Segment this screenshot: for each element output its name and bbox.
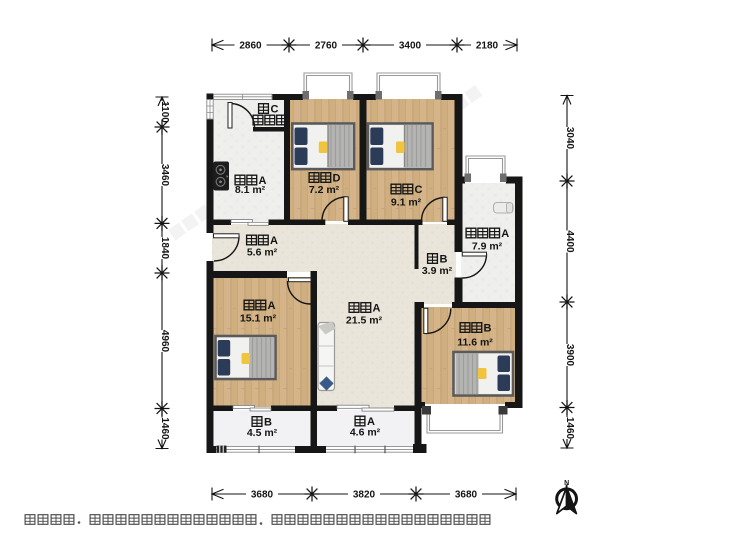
svg-text:5.6 m²: 5.6 m² [247, 247, 278, 259]
svg-text:7.9 m²: 7.9 m² [472, 241, 503, 253]
svg-text:3680: 3680 [455, 490, 478, 501]
svg-text:1460: 1460 [564, 417, 575, 440]
svg-text:2180: 2180 [476, 41, 499, 52]
svg-text:8.1 m²: 8.1 m² [235, 184, 266, 196]
svg-text:1460: 1460 [159, 417, 170, 440]
svg-text:3900: 3900 [564, 344, 575, 367]
svg-text:4960: 4960 [159, 330, 170, 353]
svg-text:9.1 m²: 9.1 m² [391, 197, 422, 209]
svg-text:1100: 1100 [159, 101, 170, 123]
svg-text:A: A [373, 303, 381, 315]
svg-text:21.5 m²: 21.5 m² [346, 315, 383, 327]
svg-text:11.6 m²: 11.6 m² [457, 337, 493, 349]
svg-text:3040: 3040 [564, 127, 575, 150]
svg-text:1840: 1840 [159, 237, 170, 260]
svg-text:A: A [501, 228, 509, 240]
svg-text:2760: 2760 [315, 41, 338, 52]
svg-text:4.6 m²: 4.6 m² [350, 427, 381, 439]
svg-text:B: B [484, 323, 492, 335]
svg-text:3820: 3820 [353, 490, 376, 501]
svg-text:3460: 3460 [159, 164, 170, 187]
svg-text:A: A [270, 235, 278, 247]
svg-text:3400: 3400 [399, 41, 422, 52]
svg-text:3.9 m²: 3.9 m² [422, 265, 453, 277]
svg-text:7.2 m²: 7.2 m² [309, 184, 340, 196]
svg-text:3680: 3680 [251, 490, 274, 501]
svg-text:A: A [268, 300, 276, 312]
svg-text:C: C [415, 184, 423, 196]
svg-text:4400: 4400 [564, 230, 575, 253]
svg-text:2860: 2860 [239, 41, 262, 52]
svg-text:15.1 m²: 15.1 m² [240, 313, 277, 325]
svg-text:D: D [333, 173, 341, 185]
svg-text:4.5 m²: 4.5 m² [247, 427, 278, 439]
svg-text:B: B [440, 254, 448, 266]
svg-text:C: C [271, 104, 279, 116]
